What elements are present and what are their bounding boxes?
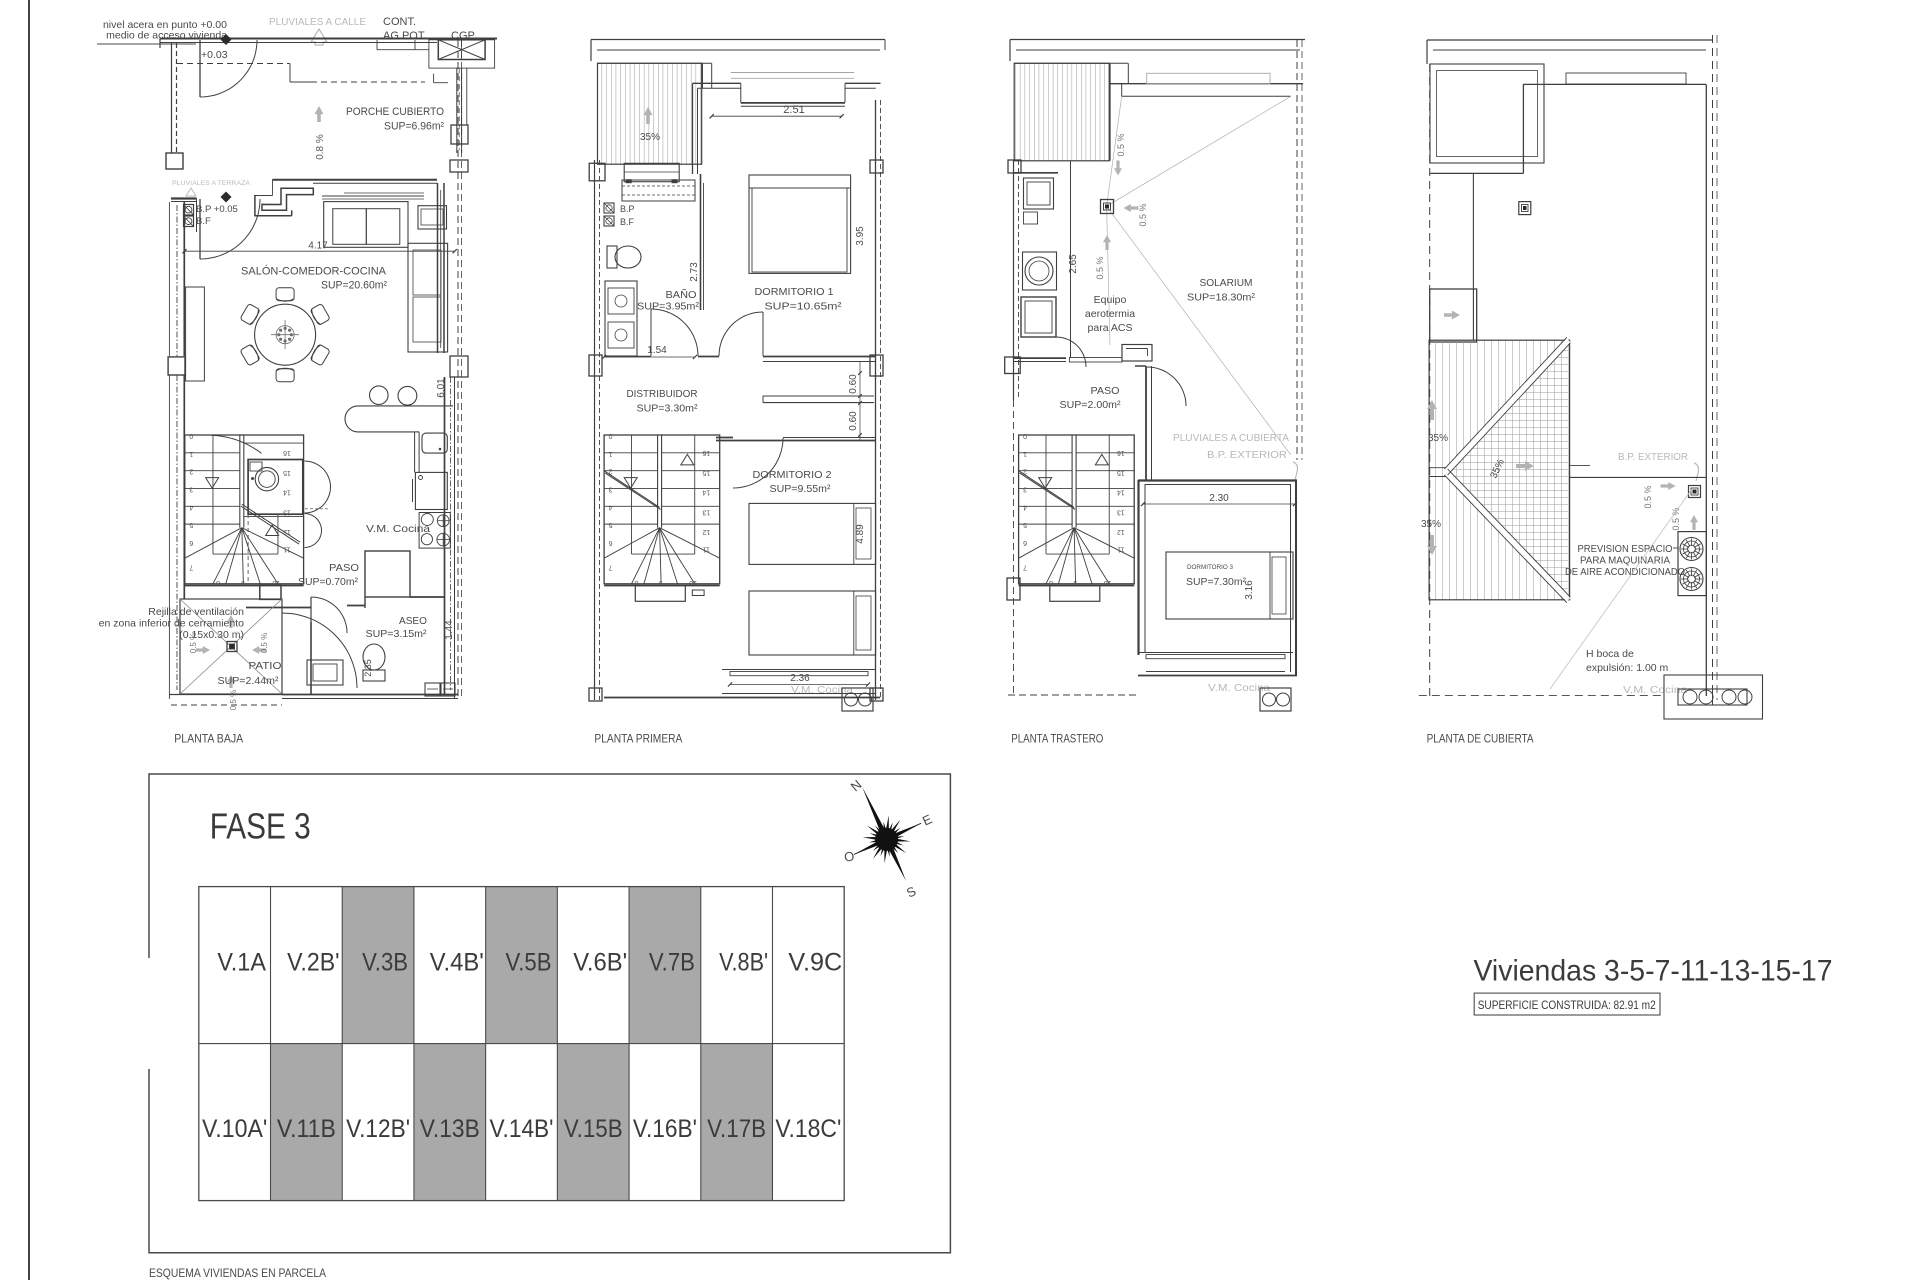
svg-text:0.8 %: 0.8 % xyxy=(315,134,326,160)
svg-text:SUP=2.44m²: SUP=2.44m² xyxy=(218,675,280,687)
svg-text:2.30: 2.30 xyxy=(1209,493,1229,504)
svg-text:SUP=6.96m²: SUP=6.96m² xyxy=(384,121,444,133)
svg-text:aerotermia: aerotermia xyxy=(1085,308,1135,320)
svg-text:6: 6 xyxy=(609,539,613,546)
svg-text:ASEO: ASEO xyxy=(399,615,427,627)
svg-text:1.54: 1.54 xyxy=(647,345,667,356)
svg-text:14: 14 xyxy=(1117,489,1125,496)
svg-text:15: 15 xyxy=(283,469,291,476)
svg-text:PLANTA DE CUBIERTA: PLANTA DE CUBIERTA xyxy=(1427,734,1534,746)
svg-text:4: 4 xyxy=(609,503,613,510)
svg-text:SUP=3.95m²: SUP=3.95m² xyxy=(637,301,700,313)
svg-text:12: 12 xyxy=(1117,528,1125,535)
svg-text:V.18C': V.18C' xyxy=(775,1115,841,1143)
svg-text:CONT.: CONT. xyxy=(383,16,416,28)
svg-text:PLUVIALES A CALLE: PLUVIALES A CALLE xyxy=(269,16,366,28)
svg-text:V.6B': V.6B' xyxy=(573,949,627,977)
svg-text:V.M. Cocina: V.M. Cocina xyxy=(366,523,430,535)
svg-text:en zona inferior de cerramient: en zona inferior de cerramiento xyxy=(99,618,244,630)
svg-text:V.8B': V.8B' xyxy=(719,949,768,977)
svg-text:15: 15 xyxy=(1117,469,1125,476)
svg-text:12: 12 xyxy=(283,528,291,535)
svg-text:B.P: B.P xyxy=(620,204,635,214)
svg-text:2.73: 2.73 xyxy=(689,262,700,282)
svg-text:SUP=3.15m²: SUP=3.15m² xyxy=(366,628,428,640)
svg-text:medio de acceso vivienda: medio de acceso vivienda xyxy=(106,30,227,42)
svg-text:2: 2 xyxy=(1023,468,1027,475)
svg-text:Viviendas 3-5-7-11-13-15-17: Viviendas 3-5-7-11-13-15-17 xyxy=(1474,955,1833,988)
svg-text:15: 15 xyxy=(702,469,710,476)
svg-text:SOLARIUM: SOLARIUM xyxy=(1200,277,1253,289)
svg-text:35%: 35% xyxy=(640,132,660,143)
svg-text:expulsión: 1.00 m: expulsión: 1.00 m xyxy=(1586,662,1669,674)
svg-text:SUP=7.30m²: SUP=7.30m² xyxy=(1186,576,1246,588)
svg-text:SALÓN-COMEDOR-COCINA: SALÓN-COMEDOR-COCINA xyxy=(241,265,387,278)
svg-text:13: 13 xyxy=(1117,508,1125,515)
svg-text:0: 0 xyxy=(189,432,193,439)
svg-text:PREVISION ESPACIO: PREVISION ESPACIO xyxy=(1578,543,1673,555)
svg-text:V.10A': V.10A' xyxy=(202,1115,267,1143)
svg-text:13: 13 xyxy=(702,508,710,515)
svg-text:V.17B: V.17B xyxy=(707,1115,766,1143)
svg-text:PARA MAQUINARIA: PARA MAQUINARIA xyxy=(1580,555,1670,567)
svg-text:Rejilla de ventilación: Rejilla de ventilación xyxy=(148,606,244,618)
svg-text:13: 13 xyxy=(283,508,291,515)
svg-text:H boca de: H boca de xyxy=(1586,648,1634,660)
svg-text:0.5 %: 0.5 % xyxy=(1643,485,1653,508)
svg-text:V.M. Cocina: V.M. Cocina xyxy=(791,684,853,696)
svg-text:V.2B': V.2B' xyxy=(287,949,340,977)
svg-text:2.51: 2.51 xyxy=(783,104,804,116)
svg-text:11: 11 xyxy=(283,546,290,553)
svg-text:V.4B': V.4B' xyxy=(430,949,484,977)
svg-text:AG.POT.: AG.POT. xyxy=(383,30,426,42)
svg-text:PATIO: PATIO xyxy=(249,660,282,672)
svg-text:11: 11 xyxy=(703,546,710,553)
svg-text:16: 16 xyxy=(1117,449,1125,456)
svg-text:4: 4 xyxy=(189,503,193,510)
svg-text:V.16B': V.16B' xyxy=(633,1115,697,1143)
svg-text:PLANTA BAJA: PLANTA BAJA xyxy=(174,734,243,746)
svg-text:V.1A: V.1A xyxy=(217,949,266,977)
svg-text:3.16: 3.16 xyxy=(1244,580,1255,600)
svg-text:35%: 35% xyxy=(1428,433,1448,444)
svg-text:DE AIRE ACONDICIONADO: DE AIRE ACONDICIONADO xyxy=(1565,566,1685,578)
svg-text:V.5B: V.5B xyxy=(506,949,552,977)
svg-text:Equipo: Equipo xyxy=(1094,294,1127,306)
svg-text:B.F: B.F xyxy=(620,217,635,227)
svg-text:4: 4 xyxy=(1023,503,1027,510)
svg-text:2: 2 xyxy=(189,468,193,475)
svg-text:PLUVIALES A TERRAZA: PLUVIALES A TERRAZA xyxy=(172,180,251,187)
svg-text:B.P. EXTERIOR: B.P. EXTERIOR xyxy=(1618,451,1688,463)
svg-text:+0.03: +0.03 xyxy=(201,49,228,61)
svg-text:BAÑO: BAÑO xyxy=(666,288,697,301)
svg-text:0.60: 0.60 xyxy=(848,374,859,394)
svg-text:6: 6 xyxy=(189,539,193,546)
svg-text:DORMITORIO 2: DORMITORIO 2 xyxy=(753,469,832,481)
svg-text:0.5 %: 0.5 % xyxy=(260,633,269,653)
svg-text:0: 0 xyxy=(1023,432,1027,439)
svg-text:16: 16 xyxy=(702,449,710,456)
svg-text:1: 1 xyxy=(189,450,193,457)
svg-text:0.5 %: 0.5 % xyxy=(1095,256,1105,279)
svg-text:V.3B: V.3B xyxy=(362,949,408,977)
svg-text:PLANTA PRIMERA: PLANTA PRIMERA xyxy=(594,734,682,746)
svg-text:PASO: PASO xyxy=(1091,385,1120,397)
svg-text:1: 1 xyxy=(609,450,613,457)
svg-text:B.F: B.F xyxy=(196,216,211,227)
svg-text:7: 7 xyxy=(1023,563,1027,570)
svg-text:PLUVIALES A CUBIERTA: PLUVIALES A CUBIERTA xyxy=(1173,432,1289,444)
svg-text:V.15B: V.15B xyxy=(564,1115,623,1143)
svg-text:16: 16 xyxy=(283,449,291,456)
svg-text:6.01: 6.01 xyxy=(436,378,447,398)
svg-text:SUPERFICIE CONSTRUIDA: 82.91 m: SUPERFICIE CONSTRUIDA: 82.91 m2 xyxy=(1478,1000,1656,1012)
svg-text:SUP=9.55m²: SUP=9.55m² xyxy=(770,483,832,495)
svg-text:5: 5 xyxy=(609,521,613,528)
svg-text:7: 7 xyxy=(609,563,613,570)
svg-text:SUP=18.30m²: SUP=18.30m² xyxy=(1187,292,1256,304)
svg-text:PASO: PASO xyxy=(329,562,359,574)
svg-text:0.5 %: 0.5 % xyxy=(1138,203,1148,226)
svg-text:PORCHE CUBIERTO: PORCHE CUBIERTO xyxy=(346,106,444,118)
svg-text:2.35: 2.35 xyxy=(363,659,373,677)
svg-text:1.44: 1.44 xyxy=(444,620,455,640)
svg-text:SUP=0.70m²: SUP=0.70m² xyxy=(298,576,358,588)
svg-text:12: 12 xyxy=(702,528,710,535)
svg-text:35%: 35% xyxy=(1421,519,1441,530)
svg-text:3.95: 3.95 xyxy=(855,226,866,246)
svg-text:DISTRIBUIDOR: DISTRIBUIDOR xyxy=(627,388,698,400)
svg-text:11: 11 xyxy=(1117,546,1124,553)
svg-text:SUP=10.65m²: SUP=10.65m² xyxy=(765,301,843,313)
svg-text:B.P. EXTERIOR: B.P. EXTERIOR xyxy=(1207,449,1287,461)
svg-text:B.P +0.05: B.P +0.05 xyxy=(196,204,238,215)
svg-text:3: 3 xyxy=(609,485,613,492)
svg-text:FASE 3: FASE 3 xyxy=(210,806,311,847)
svg-text:0: 0 xyxy=(609,432,613,439)
svg-text:SUP=2.00m²: SUP=2.00m² xyxy=(1060,399,1122,411)
svg-text:V.14B': V.14B' xyxy=(490,1115,554,1143)
svg-text:SUP=20.60m²: SUP=20.60m² xyxy=(321,280,387,292)
svg-text:DORMITORIO 1: DORMITORIO 1 xyxy=(755,286,834,298)
svg-text:14: 14 xyxy=(702,489,710,496)
svg-text:V.12B': V.12B' xyxy=(346,1115,410,1143)
svg-text:5: 5 xyxy=(189,521,193,528)
svg-text:0.60: 0.60 xyxy=(848,411,859,431)
svg-text:V.11B: V.11B xyxy=(277,1115,336,1143)
svg-text:2.65: 2.65 xyxy=(1068,254,1079,274)
svg-text:6: 6 xyxy=(1023,539,1027,546)
svg-text:para ACS: para ACS xyxy=(1088,322,1133,334)
svg-text:0.5 %: 0.5 % xyxy=(1116,133,1126,156)
svg-text:3: 3 xyxy=(189,485,193,492)
svg-text:2.36: 2.36 xyxy=(790,673,810,684)
svg-text:V.9C: V.9C xyxy=(788,949,842,977)
svg-text:14: 14 xyxy=(283,489,291,496)
svg-text:ESQUEMA VIVIENDAS EN PARCELA: ESQUEMA VIVIENDAS EN PARCELA xyxy=(149,1268,326,1280)
svg-text:PLANTA TRASTERO: PLANTA TRASTERO xyxy=(1011,734,1103,746)
svg-text:7: 7 xyxy=(189,563,193,570)
svg-text:5: 5 xyxy=(1023,521,1027,528)
svg-text:4.89: 4.89 xyxy=(855,524,866,544)
svg-text:V.13B: V.13B xyxy=(420,1115,480,1143)
svg-text:0.5 %: 0.5 % xyxy=(229,690,238,710)
svg-text:4.17: 4.17 xyxy=(308,241,328,252)
svg-text:3: 3 xyxy=(1023,485,1027,492)
svg-text:2: 2 xyxy=(609,468,613,475)
svg-text:SUP=3.30m²: SUP=3.30m² xyxy=(637,403,699,415)
svg-text:(0.15x0.30 m): (0.15x0.30 m) xyxy=(179,629,244,641)
svg-text:DORMITORIO 3: DORMITORIO 3 xyxy=(1187,565,1234,571)
svg-text:V.7B: V.7B xyxy=(649,949,695,977)
svg-text:1: 1 xyxy=(1023,450,1027,457)
